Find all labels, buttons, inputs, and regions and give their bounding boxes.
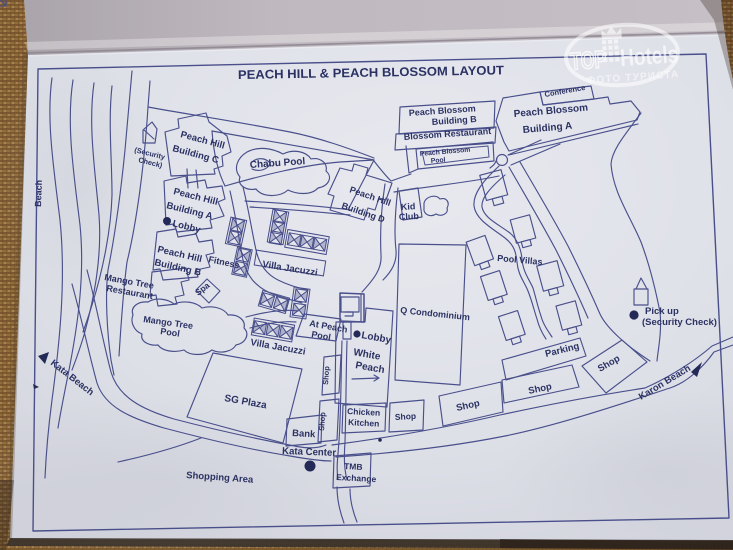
svg-text:Hotels: Hotels: [619, 41, 679, 72]
svg-text:TOP: TOP: [569, 46, 607, 75]
svg-text:Bank: Bank: [292, 428, 316, 440]
svg-text:Pool: Pool: [431, 157, 446, 165]
svg-text:Shop: Shop: [317, 411, 327, 431]
svg-text:Kitchen: Kitchen: [348, 417, 380, 429]
svg-text:(Security Check): (Security Check): [642, 317, 717, 328]
svg-text:TMB: TMB: [344, 461, 363, 472]
svg-text:Beach: Beach: [33, 180, 44, 207]
svg-text:Exchange: Exchange: [336, 472, 377, 484]
svg-text:Kata Center: Kata Center: [282, 446, 336, 459]
svg-text:Club: Club: [399, 211, 420, 222]
svg-text:Chicken: Chicken: [347, 406, 381, 418]
svg-text:Pick up: Pick up: [645, 306, 679, 317]
svg-text:Shop: Shop: [395, 411, 417, 422]
svg-text:Shop: Shop: [321, 365, 331, 385]
